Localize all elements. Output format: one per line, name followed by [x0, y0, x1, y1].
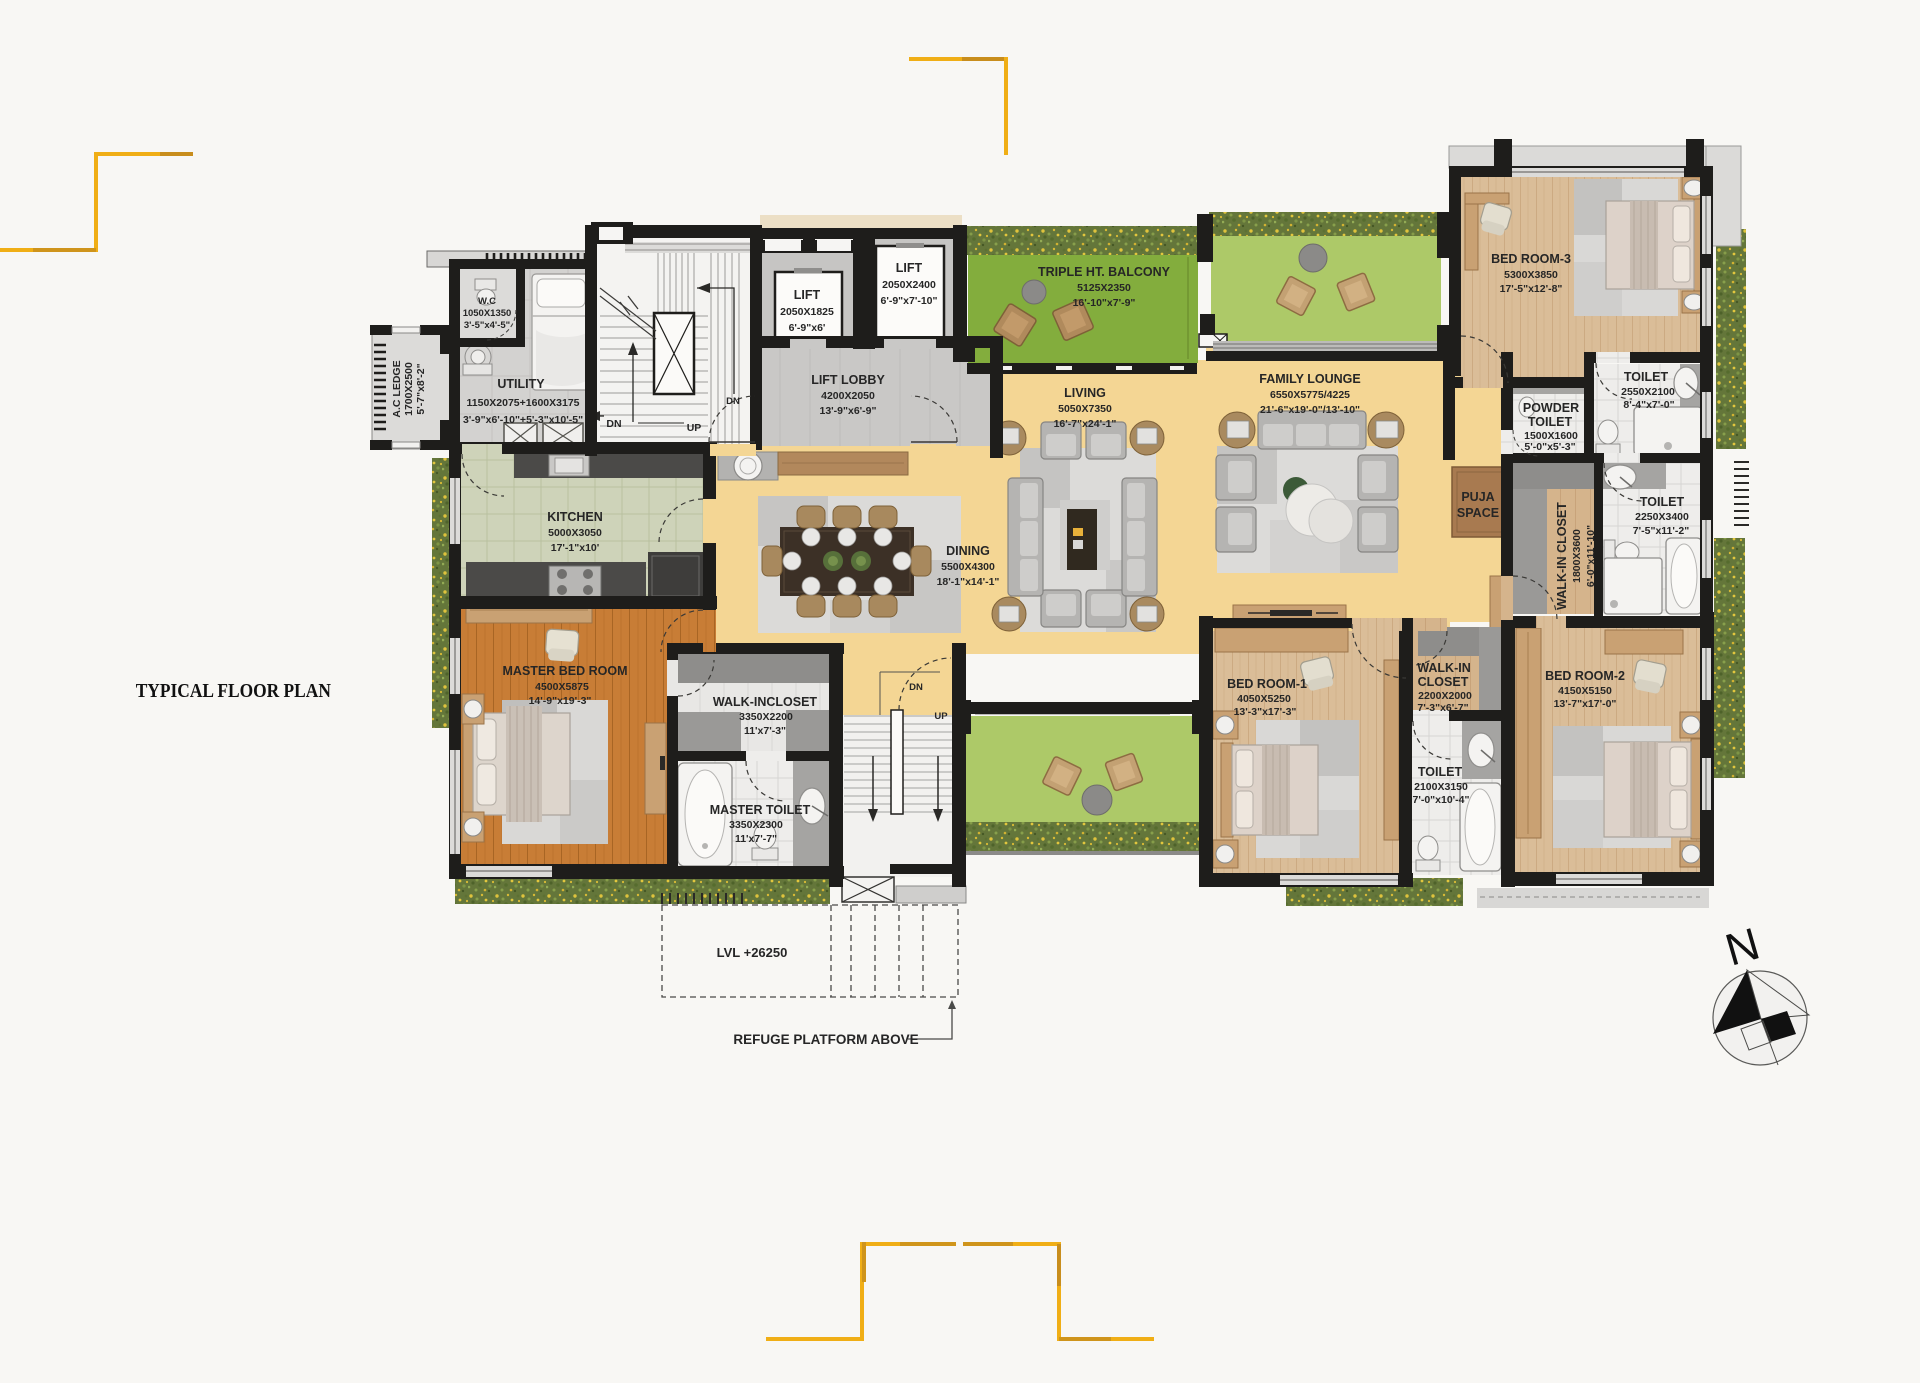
svg-text:3350X2200: 3350X2200 [739, 711, 793, 723]
svg-text:1800X3600: 1800X3600 [1571, 529, 1583, 583]
svg-text:5050X7350: 5050X7350 [1058, 403, 1112, 415]
svg-text:4050X5250: 4050X5250 [1237, 693, 1291, 705]
svg-text:1050X1350: 1050X1350 [463, 308, 512, 319]
svg-text:4200X2050: 4200X2050 [821, 390, 875, 402]
svg-text:PUJA: PUJA [1461, 490, 1494, 504]
svg-text:UP: UP [934, 711, 948, 722]
svg-text:8'-4"x7'-0": 8'-4"x7'-0" [1623, 399, 1674, 411]
svg-text:2250X3400: 2250X3400 [1635, 511, 1689, 523]
svg-text:WALK-INCLOSET: WALK-INCLOSET [713, 695, 818, 709]
svg-text:5125X2350: 5125X2350 [1077, 282, 1131, 294]
svg-text:5000X3050: 5000X3050 [548, 527, 602, 539]
svg-text:WALK-IN: WALK-IN [1417, 661, 1470, 675]
svg-text:5500X4300: 5500X4300 [941, 561, 995, 573]
svg-text:1150X2075+1600X3175: 1150X2075+1600X3175 [467, 397, 580, 409]
svg-text:UP: UP [687, 422, 702, 434]
svg-text:3350X2300: 3350X2300 [729, 819, 783, 831]
svg-text:18'-1"x14'-1": 18'-1"x14'-1" [937, 576, 1000, 588]
svg-text:DN: DN [909, 682, 923, 693]
svg-text:TOILET: TOILET [1418, 765, 1463, 779]
svg-text:2100X3150: 2100X3150 [1414, 781, 1468, 793]
svg-text:3'-5"x4'-5": 3'-5"x4'-5" [464, 320, 510, 331]
svg-text:14'-9"x19'-3": 14'-9"x19'-3" [529, 695, 592, 707]
svg-text:1700X2500: 1700X2500 [403, 362, 415, 416]
svg-text:16'-7"x24'-1": 16'-7"x24'-1" [1054, 418, 1117, 430]
svg-text:REFUGE PLATFORM ABOVE: REFUGE PLATFORM ABOVE [733, 1032, 918, 1047]
svg-text:MASTER BED ROOM: MASTER BED ROOM [503, 664, 628, 678]
svg-text:LIFT: LIFT [794, 288, 821, 302]
svg-text:3'-9"x6'-10"+5'-3"x10'-5": 3'-9"x6'-10"+5'-3"x10'-5" [463, 414, 583, 426]
svg-text:SPACE: SPACE [1457, 506, 1499, 520]
svg-text:16'-10"x7'-9": 16'-10"x7'-9" [1073, 297, 1136, 309]
svg-text:21'-6"x19'-0"/13'-10": 21'-6"x19'-0"/13'-10" [1260, 404, 1360, 416]
svg-text:2200X2000: 2200X2000 [1418, 690, 1472, 702]
svg-text:LIVING: LIVING [1064, 386, 1106, 400]
svg-text:6'-0"x11'-10": 6'-0"x11'-10" [1585, 525, 1597, 587]
svg-text:4500X5875: 4500X5875 [535, 681, 589, 693]
svg-text:DINING: DINING [946, 544, 990, 558]
svg-text:11'x7'-3": 11'x7'-3" [744, 725, 786, 737]
svg-text:5'-7"x8'-2": 5'-7"x8'-2" [415, 363, 427, 414]
svg-text:WALK-IN CLOSET: WALK-IN CLOSET [1555, 502, 1569, 610]
svg-text:BED ROOM-1: BED ROOM-1 [1227, 677, 1307, 691]
svg-text:LIFT: LIFT [896, 261, 923, 275]
svg-text:6'-9"x6': 6'-9"x6' [789, 322, 826, 334]
svg-text:17'-5"x12'-8": 17'-5"x12'-8" [1500, 283, 1563, 295]
svg-text:UTILITY: UTILITY [497, 377, 545, 391]
svg-text:2050X1825: 2050X1825 [780, 306, 834, 318]
svg-text:13'-7"x17'-0": 13'-7"x17'-0" [1554, 698, 1617, 710]
svg-text:BED ROOM-2: BED ROOM-2 [1545, 669, 1625, 683]
svg-text:4150X5150: 4150X5150 [1558, 685, 1612, 697]
svg-text:6'-9"x7'-10": 6'-9"x7'-10" [881, 295, 938, 307]
svg-text:POWDER: POWDER [1523, 401, 1579, 415]
svg-text:5300X3850: 5300X3850 [1504, 269, 1558, 281]
svg-text:5'-0"x5'-3": 5'-0"x5'-3" [1524, 441, 1575, 453]
svg-text:DN: DN [726, 396, 740, 407]
svg-text:2050X2400: 2050X2400 [882, 279, 936, 291]
svg-text:TOILET: TOILET [1528, 415, 1573, 429]
svg-text:7'-5"x11'-2": 7'-5"x11'-2" [1633, 525, 1689, 537]
svg-text:W.C: W.C [478, 296, 496, 307]
svg-text:13'-9"x6'-9": 13'-9"x6'-9" [820, 405, 877, 417]
svg-text:TRIPLE HT. BALCONY: TRIPLE HT. BALCONY [1038, 265, 1171, 279]
svg-text:TYPICAL FLOOR PLAN: TYPICAL FLOOR PLAN [136, 680, 332, 702]
svg-text:KITCHEN: KITCHEN [547, 510, 603, 524]
svg-text:TOILET: TOILET [1624, 370, 1669, 384]
svg-text:A.C LEDGE: A.C LEDGE [391, 360, 403, 417]
svg-text:LVL +26250: LVL +26250 [717, 945, 788, 960]
svg-text:17'-1"x10': 17'-1"x10' [551, 542, 600, 554]
svg-text:MASTER TOILET: MASTER TOILET [710, 803, 811, 817]
svg-text:CLOSET: CLOSET [1418, 675, 1469, 689]
svg-text:7'-3"x6'-7": 7'-3"x6'-7" [1417, 702, 1468, 714]
svg-text:BED ROOM-3: BED ROOM-3 [1491, 252, 1571, 266]
svg-text:11'x7'-7": 11'x7'-7" [735, 833, 777, 845]
svg-text:DN: DN [606, 418, 621, 430]
svg-text:TOILET: TOILET [1640, 495, 1685, 509]
svg-text:6550X5775/4225: 6550X5775/4225 [1270, 389, 1350, 401]
svg-text:LIFT LOBBY: LIFT LOBBY [811, 373, 885, 387]
svg-text:FAMILY LOUNGE: FAMILY LOUNGE [1259, 372, 1360, 386]
svg-text:2550X2100: 2550X2100 [1621, 386, 1675, 398]
svg-text:13'-3"x17'-3": 13'-3"x17'-3" [1234, 706, 1297, 718]
svg-text:7'-0"x10'-4": 7'-0"x10'-4" [1413, 794, 1470, 806]
